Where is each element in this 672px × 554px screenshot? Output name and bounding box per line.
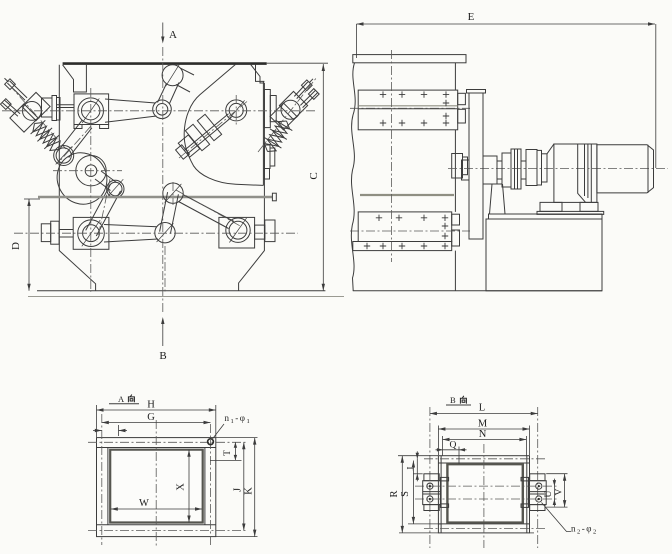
svg-text:T: T [223,450,233,456]
svg-text:n1-φ1: n1-φ1 [225,413,252,425]
svg-text:B: B [159,350,166,362]
svg-text:V: V [555,488,565,495]
svg-text:H: H [147,400,155,411]
svg-text:X: X [176,483,187,491]
svg-text:n2-φ2: n2-φ2 [571,524,598,536]
svg-text:W: W [139,498,149,509]
svg-text:S: S [400,491,411,497]
svg-text:U: U [544,490,554,497]
svg-text:M: M [478,419,488,430]
svg-text:N: N [479,429,487,440]
svg-text:A: A [169,29,177,41]
svg-text:J: J [233,488,244,492]
svg-text:L: L [479,403,485,414]
svg-text:J: J [407,466,417,470]
svg-text:D: D [10,242,22,250]
svg-text:A: A [118,394,125,404]
svg-text:G: G [147,412,155,423]
svg-text:B: B [450,395,456,405]
svg-text:K: K [244,487,255,495]
svg-text:E: E [468,11,475,23]
svg-text:Q: Q [450,441,457,451]
svg-text:C: C [308,172,320,179]
svg-text:R: R [389,490,400,497]
